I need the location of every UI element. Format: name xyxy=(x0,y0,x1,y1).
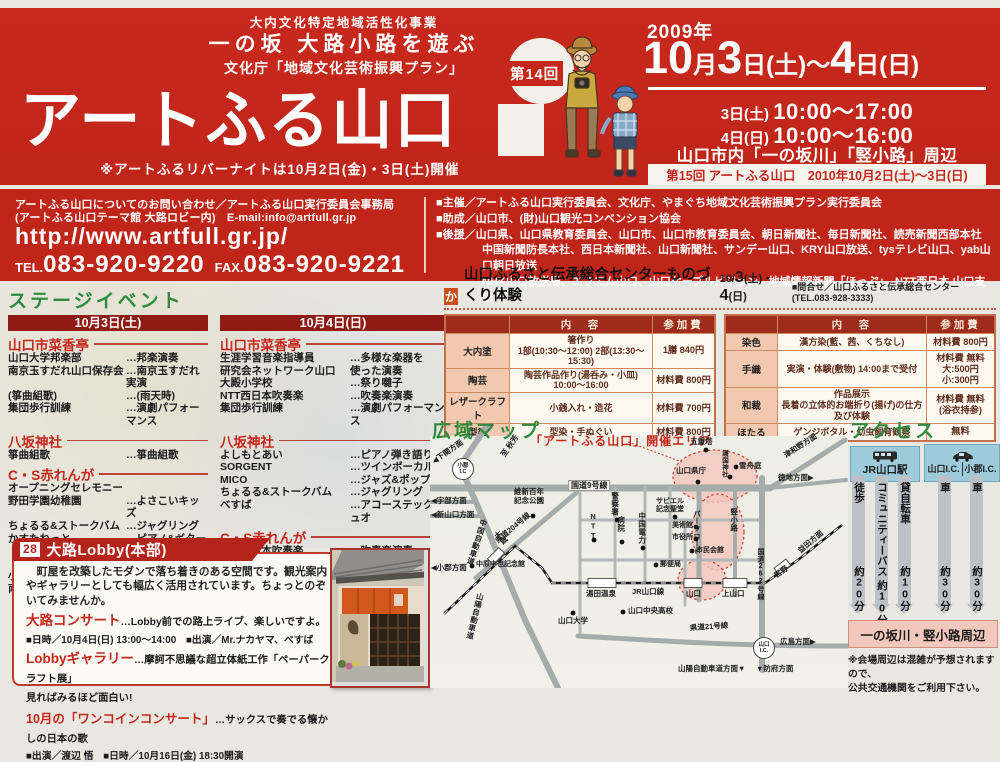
organizer-line: ■後援／山口県、山口県教育委員会、山口市、山口市教育委員会、朝日新聞社、毎日新聞… xyxy=(436,228,996,244)
map-label-sesshu: 雪舟庭 xyxy=(739,462,762,471)
date-part: 3 xyxy=(717,32,742,83)
map-label-chugoku-elec: 中国電力 xyxy=(637,512,646,544)
row-content: 箸作り 1部(10:30～12:00) 2部(13:30～15:30) xyxy=(509,334,652,369)
act-performer: SORGENT xyxy=(220,461,350,474)
corner-cell xyxy=(725,315,777,334)
col-header-content: 内 容 xyxy=(777,315,926,334)
access-from-ic: 山口I.C.小郡I.C. xyxy=(924,444,1000,482)
map-label-r262: 国道262号線 xyxy=(756,548,764,601)
act-performer: (箏曲組歌) xyxy=(8,390,126,403)
map-label-r9: 国道9号線 xyxy=(568,480,610,491)
bus-icon xyxy=(872,451,898,462)
lobby-onecoin-info: ■出演／渡辺 悟 ■日時／10月16日(金) 18:30開演 xyxy=(26,748,332,762)
act-performer: NTT西日本吹奏楽 xyxy=(220,390,350,403)
act-row: SORGENT…ツインボーカル xyxy=(220,461,446,474)
map-label-hiroshima: 広島方面▶ xyxy=(780,638,816,647)
workshop-date-part: 10/ xyxy=(720,273,735,285)
act-performer: 南京玉すだれ山口保存会 xyxy=(8,365,126,390)
lobby-concert-title: 大路コンサート xyxy=(26,613,121,628)
act-genre: …祭り囃子 xyxy=(350,377,446,390)
act-performer: ちょるる&ストークバム xyxy=(220,486,350,499)
act-row: 山口大学邦楽部…邦楽演奏 xyxy=(8,352,208,365)
col-header-fee: 参加費 xyxy=(926,315,995,334)
map-label-tokuji: 徳地方面▶ xyxy=(778,474,814,483)
event-title: アートふる山口 xyxy=(20,68,457,161)
act-row: NTT西日本吹奏楽…吹奏楽演奏 xyxy=(220,390,446,403)
act-performer: 大殿小学校 xyxy=(220,377,350,390)
lobby-concert-desc: …Lobby前での路上ライブ、楽しいですよ。 xyxy=(121,617,326,628)
venue-block: 八坂神社 よしもとあい…ピアノ弾き語り SORGENT…ツインボーカル MICO… xyxy=(220,433,446,525)
rect-decoration xyxy=(498,104,544,156)
act-genre: …演劇パフォーマンス xyxy=(126,402,208,427)
row-label: 大内塗 xyxy=(445,334,509,369)
map-label-museum: 美術館 xyxy=(672,522,693,530)
act-genre xyxy=(126,482,208,495)
access-mode-time: 約20分 xyxy=(852,566,867,611)
venue-name: 八坂神社 xyxy=(8,431,62,451)
act-row: MICO…ジャズ&ポップス xyxy=(220,474,446,487)
organizer-line: ■助成／山口市、(財)山口観光コンベンション協会 xyxy=(436,212,996,228)
table-row: 手織実演・体験(敷物) 14:00まで受付材料費 無料 大:500円 小:300… xyxy=(725,351,995,387)
corner-cell xyxy=(445,315,509,334)
map-label-yamaguchi-ic: 山口 I.C. xyxy=(753,637,775,659)
mascot-illustration xyxy=(552,34,652,182)
date-part: 月 xyxy=(693,52,717,79)
table-row: 染色漢方染(藍、茜、くちなし)材料費 800円 xyxy=(725,334,995,351)
col-header-fee: 参加費 xyxy=(653,315,715,334)
act-row: 大殿小学校…祭り囃子 xyxy=(220,377,446,390)
ic2-label: 小郡I.C. xyxy=(965,462,997,475)
fax-label: FAX. xyxy=(215,260,244,275)
date-part: ～ xyxy=(806,52,830,79)
lobby-onecoin-title: 10月の「ワンコインコンサート」 xyxy=(26,712,215,726)
map-label-hofu: ▼防府方面 xyxy=(756,665,793,674)
row-content: 漢方染(藍、茜、くちなし) xyxy=(777,334,926,351)
map-label-tatekoji: 竪小路 xyxy=(729,508,738,532)
map-label-ogori: ◀小郡方面 xyxy=(431,564,467,573)
rule-line xyxy=(311,536,446,538)
organizer-line: ■主催／アートふる山口実行委員会、文化庁、やまぐち地域文化芸術振興プラン実行委員… xyxy=(436,196,996,212)
workshop-date-part: (土)・ xyxy=(744,273,773,285)
workshop-date-part: 3 xyxy=(735,269,744,286)
act-row: 集団歩行訓練…演劇パフォーマンス xyxy=(8,402,208,427)
map-title: 広域マップ xyxy=(432,416,542,443)
map-label-pagoda: 五重塔 xyxy=(690,438,713,447)
vertical-divider xyxy=(424,197,426,273)
car-icon xyxy=(951,451,973,462)
divider-line xyxy=(648,87,986,90)
access-mode-label: 車 xyxy=(970,482,985,493)
access-section: アクセス JR山口駅 山口I.C.小郡I.C. 徒歩 コミュニティーバス 貸自転… xyxy=(848,420,1000,688)
map-label-yamaguchi-sta: 山口 xyxy=(686,590,701,599)
lobby-banner: 28 大路Lobby(本部) xyxy=(12,538,270,561)
access-mode-time: 約10分 xyxy=(898,566,913,611)
workshop-dates: 10/3(土)・4(日) xyxy=(720,269,786,305)
map-label-yuda-onsen: 湯田温泉 xyxy=(586,590,616,599)
access-mode-time: 約30分 xyxy=(970,566,985,611)
act-row: 南京玉すだれ山口保存会…南京玉すだれ実演 xyxy=(8,365,208,390)
map-label-post-office: 郵便局 xyxy=(660,561,681,569)
wide-area-map-graphic xyxy=(430,420,848,688)
row-label: 手織 xyxy=(725,351,777,387)
tel-label: TEL. xyxy=(15,260,43,275)
row-fee: 1膳 840円 xyxy=(653,334,715,369)
event-venue: 山口市内「一の坂川」「竪小路」周辺 xyxy=(648,142,986,166)
access-note: ※会場周辺は混雑が予想されますので、 公共交通機関をご利用下さい。 xyxy=(848,654,1000,697)
date-part: 10 xyxy=(643,32,693,83)
header-banner: 大内文化特定地域活性化事業 一の坂 大路小路を遊ぶ 文化庁「地域文化芸術振興プラ… xyxy=(0,8,1000,185)
ka-badge: か xyxy=(444,288,458,305)
workshop-date-part: (日) xyxy=(729,291,747,303)
date-part: 日(日) xyxy=(855,52,919,79)
map-label-xavier: サビエル 記念聖堂 xyxy=(656,498,684,514)
act-performer: ちょるる&ストークバム xyxy=(8,520,126,533)
date-part: 4 xyxy=(830,32,855,83)
lobby-photo-art xyxy=(332,550,424,682)
act-performer: よしもとあい xyxy=(220,449,350,462)
event-dates: 10月3日(土)～4日(日) xyxy=(643,32,919,84)
rule-line xyxy=(306,343,446,345)
dotted-divider xyxy=(444,308,996,310)
act-performer: 集団歩行訓練 xyxy=(8,402,126,427)
act-performer: べすば xyxy=(220,499,350,524)
act-performer: 生涯学習音楽指導員 研究会ネットワーク山口 xyxy=(220,352,350,377)
access-mode-label: 徒歩 xyxy=(852,482,867,503)
access-destination: 一の坂川・竪小路周辺 xyxy=(848,620,998,648)
venue-block: 山口市菜香亭 生涯学習音楽指導員 研究会ネットワーク山口…多様な楽器を 使った演… xyxy=(220,336,446,428)
ic1-label: 山口I.C. xyxy=(927,462,959,475)
lobby-description: 町屋を改築したモダンで落ち着きのある空間です。観光案内やギャラリーとしても幅広く… xyxy=(26,565,332,608)
act-row: 集団歩行訓練…演劇パフォーマンス xyxy=(220,402,446,427)
row-fee: 材料費 800円 xyxy=(926,334,995,351)
map-label-univ: 山口大学 xyxy=(558,617,588,626)
act-row: よしもとあい…ピアノ弾き語り xyxy=(220,449,446,462)
act-performer: 山口大学邦楽部 xyxy=(8,352,126,365)
map-label-shin-yamaguchi: ◀新山口方面 xyxy=(431,511,474,520)
lobby-body: 町屋を改築したモダンで落ち着きのある空間です。観光案内やギャラリーとしても幅広く… xyxy=(26,565,332,762)
access-mode-label: コミュニティーバス xyxy=(875,482,890,577)
access-mode-time: 約10分 xyxy=(875,580,890,625)
venue-name: 八坂神社 xyxy=(220,431,274,451)
date-part: 日(土) xyxy=(742,52,806,79)
rule-line xyxy=(99,473,208,475)
act-genre: …ジャグリング xyxy=(126,520,208,533)
map-label-hospital: 病院 xyxy=(616,516,625,532)
venue-block: 八坂神社 箏曲組歌…箏曲組歌 xyxy=(8,433,208,462)
act-row: ちょるる&ストークバム…ジャグリング xyxy=(8,520,208,533)
next-edition-note: 第15回 アートふる山口 2010年10月2日(土)～3日(日) xyxy=(648,164,986,185)
map-label-cityhall: 市役所 xyxy=(672,534,693,542)
map-label-police: 警察署 xyxy=(610,492,619,516)
row-fee: 材料費 無料 大:500円 小:300円 xyxy=(926,351,995,387)
map-label-gokoku: 護国神社 xyxy=(720,450,727,478)
act-row: べすば…アコーステックデュオ xyxy=(220,499,446,524)
map-label-chuo-hs: 山口中央高校 xyxy=(628,607,673,616)
rule-line xyxy=(279,440,446,442)
act-genre: …邦楽演奏 xyxy=(126,352,208,365)
workshop-inquiry: ■問合せ／山口ふるさと伝承総合センター(TEL.083-928-3333) xyxy=(792,280,996,305)
website-url: http://www.artfull.gr.jp/ xyxy=(15,223,288,250)
act-row: (箏曲組歌)…(雨天時) xyxy=(8,390,208,403)
act-performer: MICO xyxy=(220,474,350,487)
station-label: JR山口駅 xyxy=(863,462,908,477)
access-title: アクセス xyxy=(850,416,937,443)
date-bar-day2: 10月4日(日) xyxy=(220,315,446,331)
act-row: ちょるる&ストークバム…ジャグリング xyxy=(220,486,446,499)
wide-area-map: 広域マップ 「アートふる山口」開催エリア 至 秋芳 ◀下関方面 小郡 I.C ◀… xyxy=(430,420,848,688)
workshop-title: 山口ふるさと伝承総合センターものづくり体験 xyxy=(464,263,714,305)
stage-events-title: ステージイベント xyxy=(8,286,446,313)
map-label-ogori-ic: 小郡 I.C xyxy=(452,458,474,480)
act-performer: オープニングセレモニー xyxy=(8,482,126,495)
map-label-kencho: 山口県庁 xyxy=(676,467,706,476)
row-label: 陶芸 xyxy=(445,368,509,392)
row-label: 和裁 xyxy=(725,387,777,423)
act-genre: …箏曲組歌 xyxy=(126,449,208,462)
date-bar-day1: 10月3日(土) xyxy=(8,315,208,331)
act-genre: …南京玉すだれ実演 xyxy=(126,365,208,390)
venue-block: 山口市菜香亭 山口大学邦楽部…邦楽演奏 南京玉すだれ山口保存会…南京玉すだれ実演… xyxy=(8,336,208,428)
map-label-parkroad: パークロード xyxy=(692,510,700,555)
act-row: オープニングセレモニー xyxy=(8,482,208,495)
tel-number: 083-920-9220 xyxy=(43,251,204,278)
rule-line xyxy=(94,343,208,345)
row-content: 陶芸作品作り(湯呑み・小皿) 10:00～16:00 xyxy=(509,368,652,392)
map-label-sanyo-dir: 山陽自動車道方面▼ xyxy=(678,665,745,674)
phone-row: TEL.083-920-9220FAX.083-920-9221 xyxy=(15,251,415,279)
table-row: 陶芸陶芸作品作り(湯呑み・小皿) 10:00～16:00材料費 800円 xyxy=(445,368,715,392)
fax-number: 083-920-9221 xyxy=(244,251,405,278)
rule-line xyxy=(67,440,208,442)
lobby-number-badge: 28 xyxy=(20,542,40,557)
act-row: 野田学園幼稚園…よさこいキッズ xyxy=(8,495,208,520)
lobby-gallery-title: Lobbyギャラリー xyxy=(26,651,134,666)
row-fee: 材料費 800円 xyxy=(653,368,715,392)
row-content: 実演・体験(敷物) 14:00まで受付 xyxy=(777,351,926,387)
divider xyxy=(962,462,963,476)
act-genre: …よさこいキッズ xyxy=(126,495,208,520)
lobby-concert-info: ■日時／10月4日(日) 13:00～14:00 ■出演／Mr.ナカヤマ、べすば xyxy=(26,632,332,646)
row-fee: 材料費 700円 xyxy=(653,393,715,424)
table-row: 大内塗箸作り 1部(10:30～12:00) 2部(13:30～15:30)1膳… xyxy=(445,334,715,369)
map-label-jr-line: JR山口線 xyxy=(632,588,664,597)
row-label: 染色 xyxy=(725,334,777,351)
act-performer: 野田学園幼稚園 xyxy=(8,495,126,520)
lobby-title: 大路Lobby(本部) xyxy=(46,539,166,560)
lobby-photo xyxy=(330,548,430,688)
act-genre: …多様な楽器を 使った演奏 xyxy=(350,352,446,377)
act-genre: …(雨天時) xyxy=(126,390,208,403)
access-mode-time: 約30分 xyxy=(938,566,953,611)
program-line-1: 大内文化特定地域活性化事業 xyxy=(168,15,520,31)
act-performer: 箏曲組歌 xyxy=(8,449,126,462)
act-genre: …吹奏楽演奏 xyxy=(350,390,446,403)
access-mode-label: 貸自転車 xyxy=(898,482,913,524)
act-performer: 集団歩行訓練 xyxy=(220,402,350,427)
workshop-date-part: 4 xyxy=(720,287,729,304)
map-label-ishin-park: 維新百年 記念公園 xyxy=(514,488,544,505)
program-line-2: 一の坂 大路小路を遊ぶ xyxy=(168,31,520,58)
venue-name: 山口市菜香亭 xyxy=(220,334,301,354)
venue-name: 山口市菜香亭 xyxy=(8,334,89,354)
act-row: 生涯学習音楽指導員 研究会ネットワーク山口…多様な楽器を 使った演奏 xyxy=(220,352,446,377)
map-label-kami-yamaguchi: 上山口 xyxy=(722,590,745,599)
map-label-chuya-museum: 中原中也記念館 xyxy=(476,561,525,569)
access-mode-label: 車 xyxy=(938,482,953,493)
map-label-ntt: NTT xyxy=(588,512,597,541)
act-row: 箏曲組歌…箏曲組歌 xyxy=(8,449,208,462)
map-label-ube: ◀宇部方面 xyxy=(431,497,467,506)
map-label-civic-hall: 市民会館 xyxy=(696,547,724,555)
col-header-content: 内 容 xyxy=(509,315,652,334)
river-night-note: ※アートふるリバーナイトは10月2日(金)・3日(土)開催 xyxy=(100,158,459,178)
event-area-label: 「アートふる山口」開催エリア xyxy=(530,432,711,449)
